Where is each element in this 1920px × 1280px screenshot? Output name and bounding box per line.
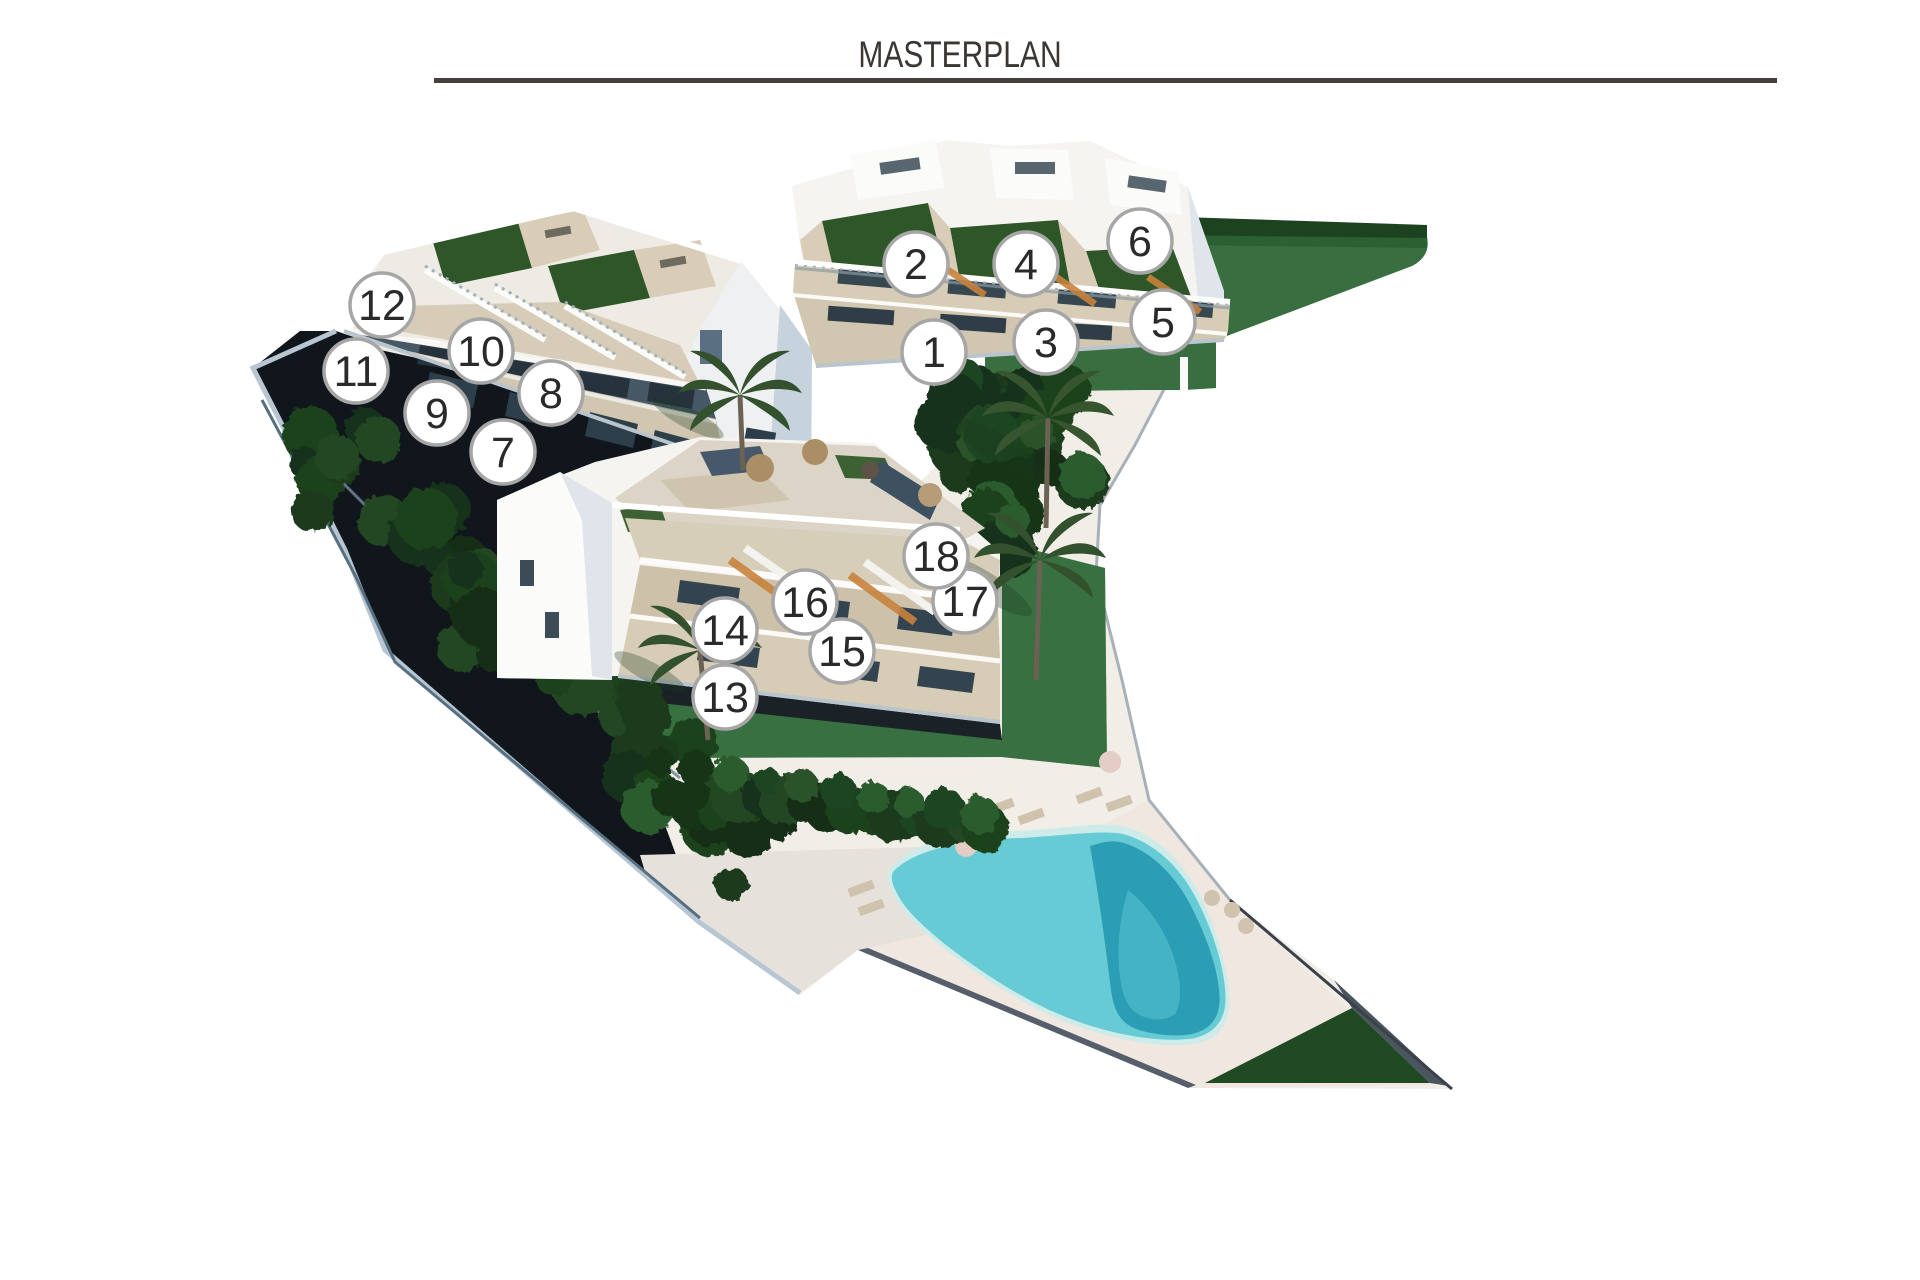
svg-text:5: 5 xyxy=(1151,299,1175,347)
svg-text:12: 12 xyxy=(358,282,406,330)
svg-text:17: 17 xyxy=(941,578,989,626)
svg-text:16: 16 xyxy=(781,579,829,627)
svg-text:18: 18 xyxy=(912,533,960,581)
svg-text:14: 14 xyxy=(701,607,749,655)
svg-text:3: 3 xyxy=(1034,319,1058,367)
svg-text:9: 9 xyxy=(425,390,449,438)
svg-text:7: 7 xyxy=(491,429,515,477)
svg-text:8: 8 xyxy=(539,370,563,418)
svg-text:10: 10 xyxy=(457,328,505,376)
svg-text:11: 11 xyxy=(334,348,379,396)
svg-text:6: 6 xyxy=(1128,218,1152,266)
svg-text:1: 1 xyxy=(922,329,946,377)
svg-text:2: 2 xyxy=(904,241,928,289)
svg-text:13: 13 xyxy=(701,674,749,722)
svg-text:15: 15 xyxy=(818,628,866,676)
svg-text:4: 4 xyxy=(1014,241,1038,289)
